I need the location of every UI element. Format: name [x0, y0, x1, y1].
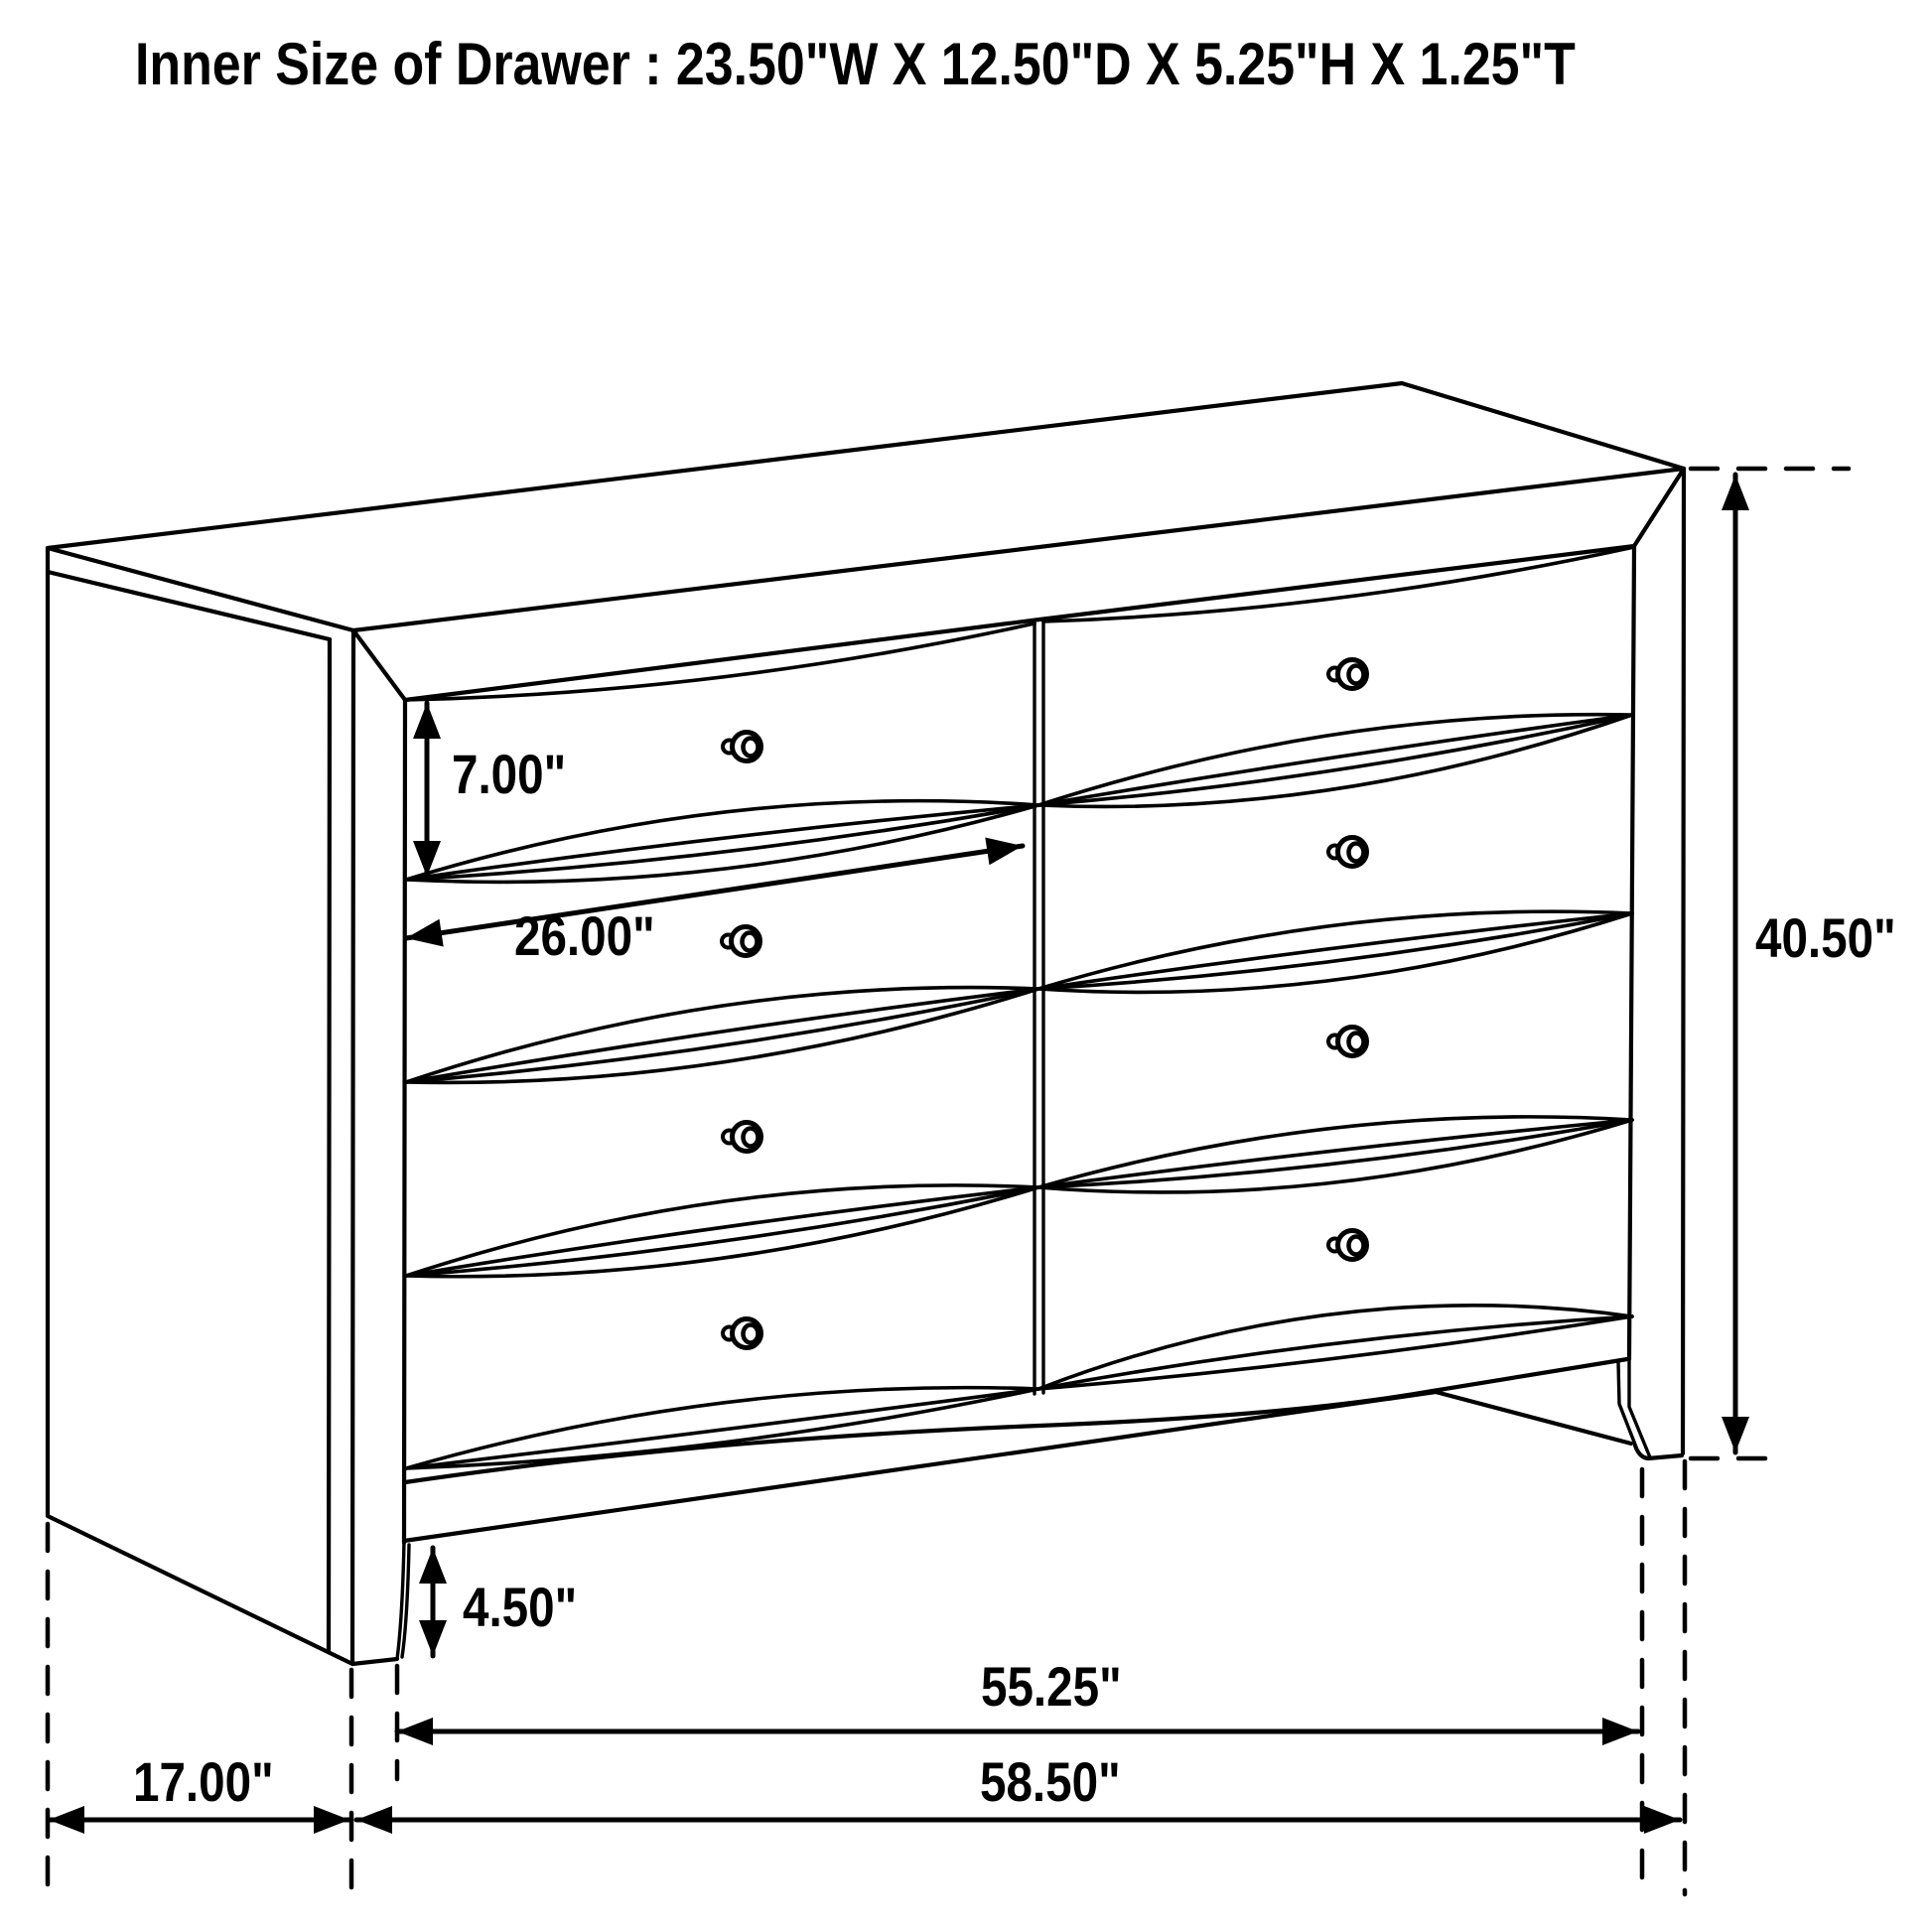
svg-text:55.25": 55.25" — [981, 1656, 1122, 1718]
svg-text:40.50": 40.50" — [1755, 907, 1896, 969]
svg-text:58.50": 58.50" — [980, 1751, 1121, 1813]
svg-text:26.00": 26.00" — [514, 905, 655, 967]
svg-text:17.00": 17.00" — [133, 1751, 274, 1813]
svg-text:7.00": 7.00" — [452, 744, 566, 805]
svg-text:4.50": 4.50" — [463, 1577, 577, 1638]
svg-text:Inner Size of Drawer : 23.50"W: Inner Size of Drawer : 23.50"W X 12.50"D… — [135, 30, 1576, 96]
